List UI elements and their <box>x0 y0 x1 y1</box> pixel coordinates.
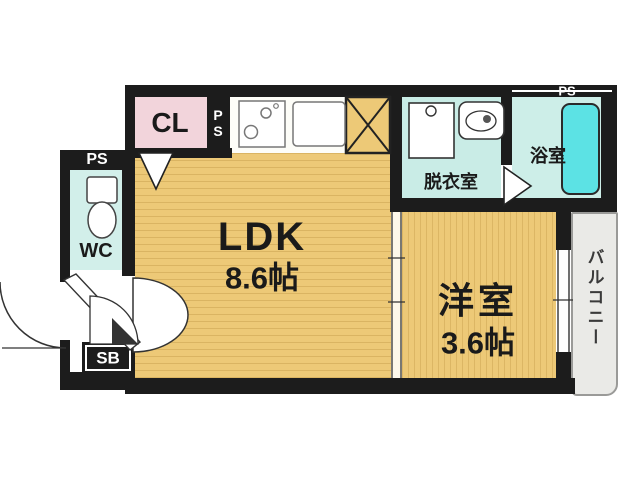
wall-right <box>601 85 617 212</box>
wall-top <box>125 85 617 97</box>
ldk-label: LDK <box>218 217 306 257</box>
wall-leftcol-upper <box>60 150 70 282</box>
balcony-label: バルコニー <box>586 248 603 348</box>
ldk-area-label: 8.6帖 <box>225 263 299 294</box>
wall-bottom <box>125 378 575 394</box>
pipe-space-kitchen-label: PS <box>211 107 225 139</box>
western-room-area-label: 3.6帖 <box>441 328 515 359</box>
closet-label: CL <box>151 109 188 137</box>
toilet-label: WC <box>79 241 112 261</box>
wall-dressing-bath <box>501 97 512 165</box>
wall-kitchen-dressing <box>390 85 402 198</box>
refrigerator-space <box>346 97 390 153</box>
pipe-space-bath-label: PS <box>558 85 575 98</box>
pipe-space-toilet-label: PS <box>86 152 107 168</box>
wall-left-upper <box>125 85 135 157</box>
wall-wetarea-bottom <box>390 198 617 212</box>
wall-closet-bottom <box>125 148 232 158</box>
balcony-window <box>553 212 573 378</box>
shoe-box-label: SB <box>96 350 120 367</box>
bathroom-label: 浴室 <box>530 147 566 165</box>
floorplan: CL PS PS PS 脱衣室 浴室 WC SB LDK 8.6帖 洋室 3.6… <box>0 0 640 480</box>
dressing-room-label: 脱衣室 <box>424 173 478 191</box>
wall-wc-ldk <box>122 150 135 276</box>
kitchen-counter <box>230 97 346 153</box>
western-room-label: 洋室 <box>438 283 518 319</box>
